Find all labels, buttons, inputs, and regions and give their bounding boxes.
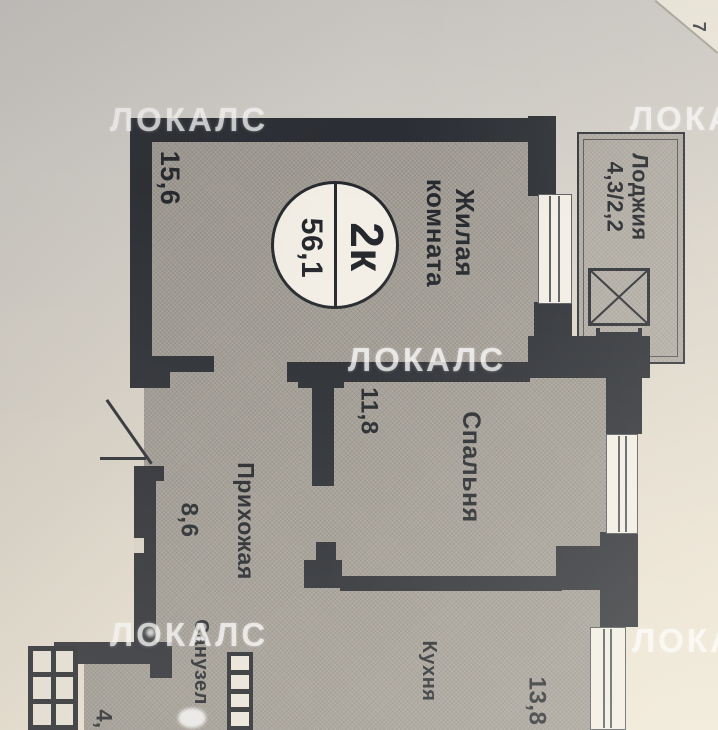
window-glazing-line (549, 196, 551, 302)
bedroom-label: Спальня (457, 411, 485, 523)
floor-plan-photo: 15,6 Жилая комната Лоджия 4,3/2,2 Спальн… (0, 0, 718, 730)
watermark-lokals: ЛОКАЛС (348, 341, 506, 379)
entrance-door-tick (100, 457, 146, 460)
window-glazing-line (625, 436, 627, 532)
glare-spot (178, 708, 206, 728)
kitchen-area-label: 13,8 (523, 677, 550, 726)
window-glazing-line (610, 629, 612, 728)
hatch-cell (231, 675, 249, 689)
hatch-cell (231, 712, 249, 726)
window-glazing-line (603, 629, 605, 728)
loggia-label: Лоджия 4,3/2,2 (602, 153, 651, 241)
wall-junction-block (556, 546, 606, 590)
hatch-cell (33, 677, 51, 698)
wall-left-door-jamb-top (130, 372, 170, 388)
wall-left-upper (130, 118, 152, 388)
bedroom-area-label: 11,8 (355, 387, 382, 434)
loggia-label-name: Лоджия (627, 153, 652, 241)
watermark-lokals: ЛОКАЛС (110, 101, 268, 139)
living-room-area-label: 15,6 (155, 151, 185, 206)
living-room-label-line2: комната (421, 179, 450, 287)
watermark-lokals: ЛОКАЛС (630, 100, 718, 138)
loggia-window-symbol (588, 268, 650, 326)
vent-shaft (227, 652, 253, 730)
wall-notch (134, 538, 144, 553)
window-glazing-line (618, 436, 620, 532)
window-kitchen (590, 627, 626, 730)
wall-bottom-left-step (150, 662, 172, 678)
living-room-label-line1: Жилая (450, 179, 479, 287)
wall-right-pier-lower (600, 532, 638, 627)
hallway-label: Прихожая (232, 462, 258, 579)
page-number: 7 (689, 22, 709, 33)
room-fill-bedroom-kitchen (300, 358, 612, 730)
watermark-lokals: ЛОКАЛС (632, 622, 718, 660)
apartment-type-badge: 2к 56,1 (271, 181, 399, 309)
badge-divider (334, 184, 337, 306)
wall-corner-block (304, 560, 342, 588)
loggia-label-area: 4,3/2,2 (602, 153, 627, 241)
bathroom-area-label: 4, (91, 709, 116, 728)
shaft-hatch-block (28, 646, 78, 730)
wall-right-pier-upper (606, 372, 642, 434)
hatch-cell (33, 651, 51, 672)
badge-area-label: 56,1 (294, 218, 328, 278)
living-room-label: Жилая комната (421, 179, 479, 287)
wall-living-right-upper (528, 116, 556, 196)
wall-hallway-bedroom-upper (312, 380, 334, 486)
badge-type-label: 2к (340, 222, 392, 272)
hatch-cell (56, 651, 74, 672)
hatch-cell (33, 704, 51, 725)
wall-hallway-living-stub (152, 356, 214, 372)
hatch-cell (56, 704, 74, 725)
window-living-loggia (538, 194, 572, 304)
watermark-lokals: ЛОКАЛС (110, 616, 268, 654)
wall-living-right-lower (534, 302, 572, 344)
window-bedroom (606, 434, 638, 534)
window-glazing-line (558, 196, 560, 302)
hatch-cell (231, 656, 249, 670)
wall-bedroom-kitchen (340, 576, 562, 591)
hallway-area-label: 8,6 (175, 503, 202, 538)
wall-left-door-jamb-bottom (134, 466, 164, 481)
kitchen-label: Кухня (418, 641, 440, 702)
hatch-cell (231, 694, 249, 708)
hatch-cell (56, 677, 74, 698)
